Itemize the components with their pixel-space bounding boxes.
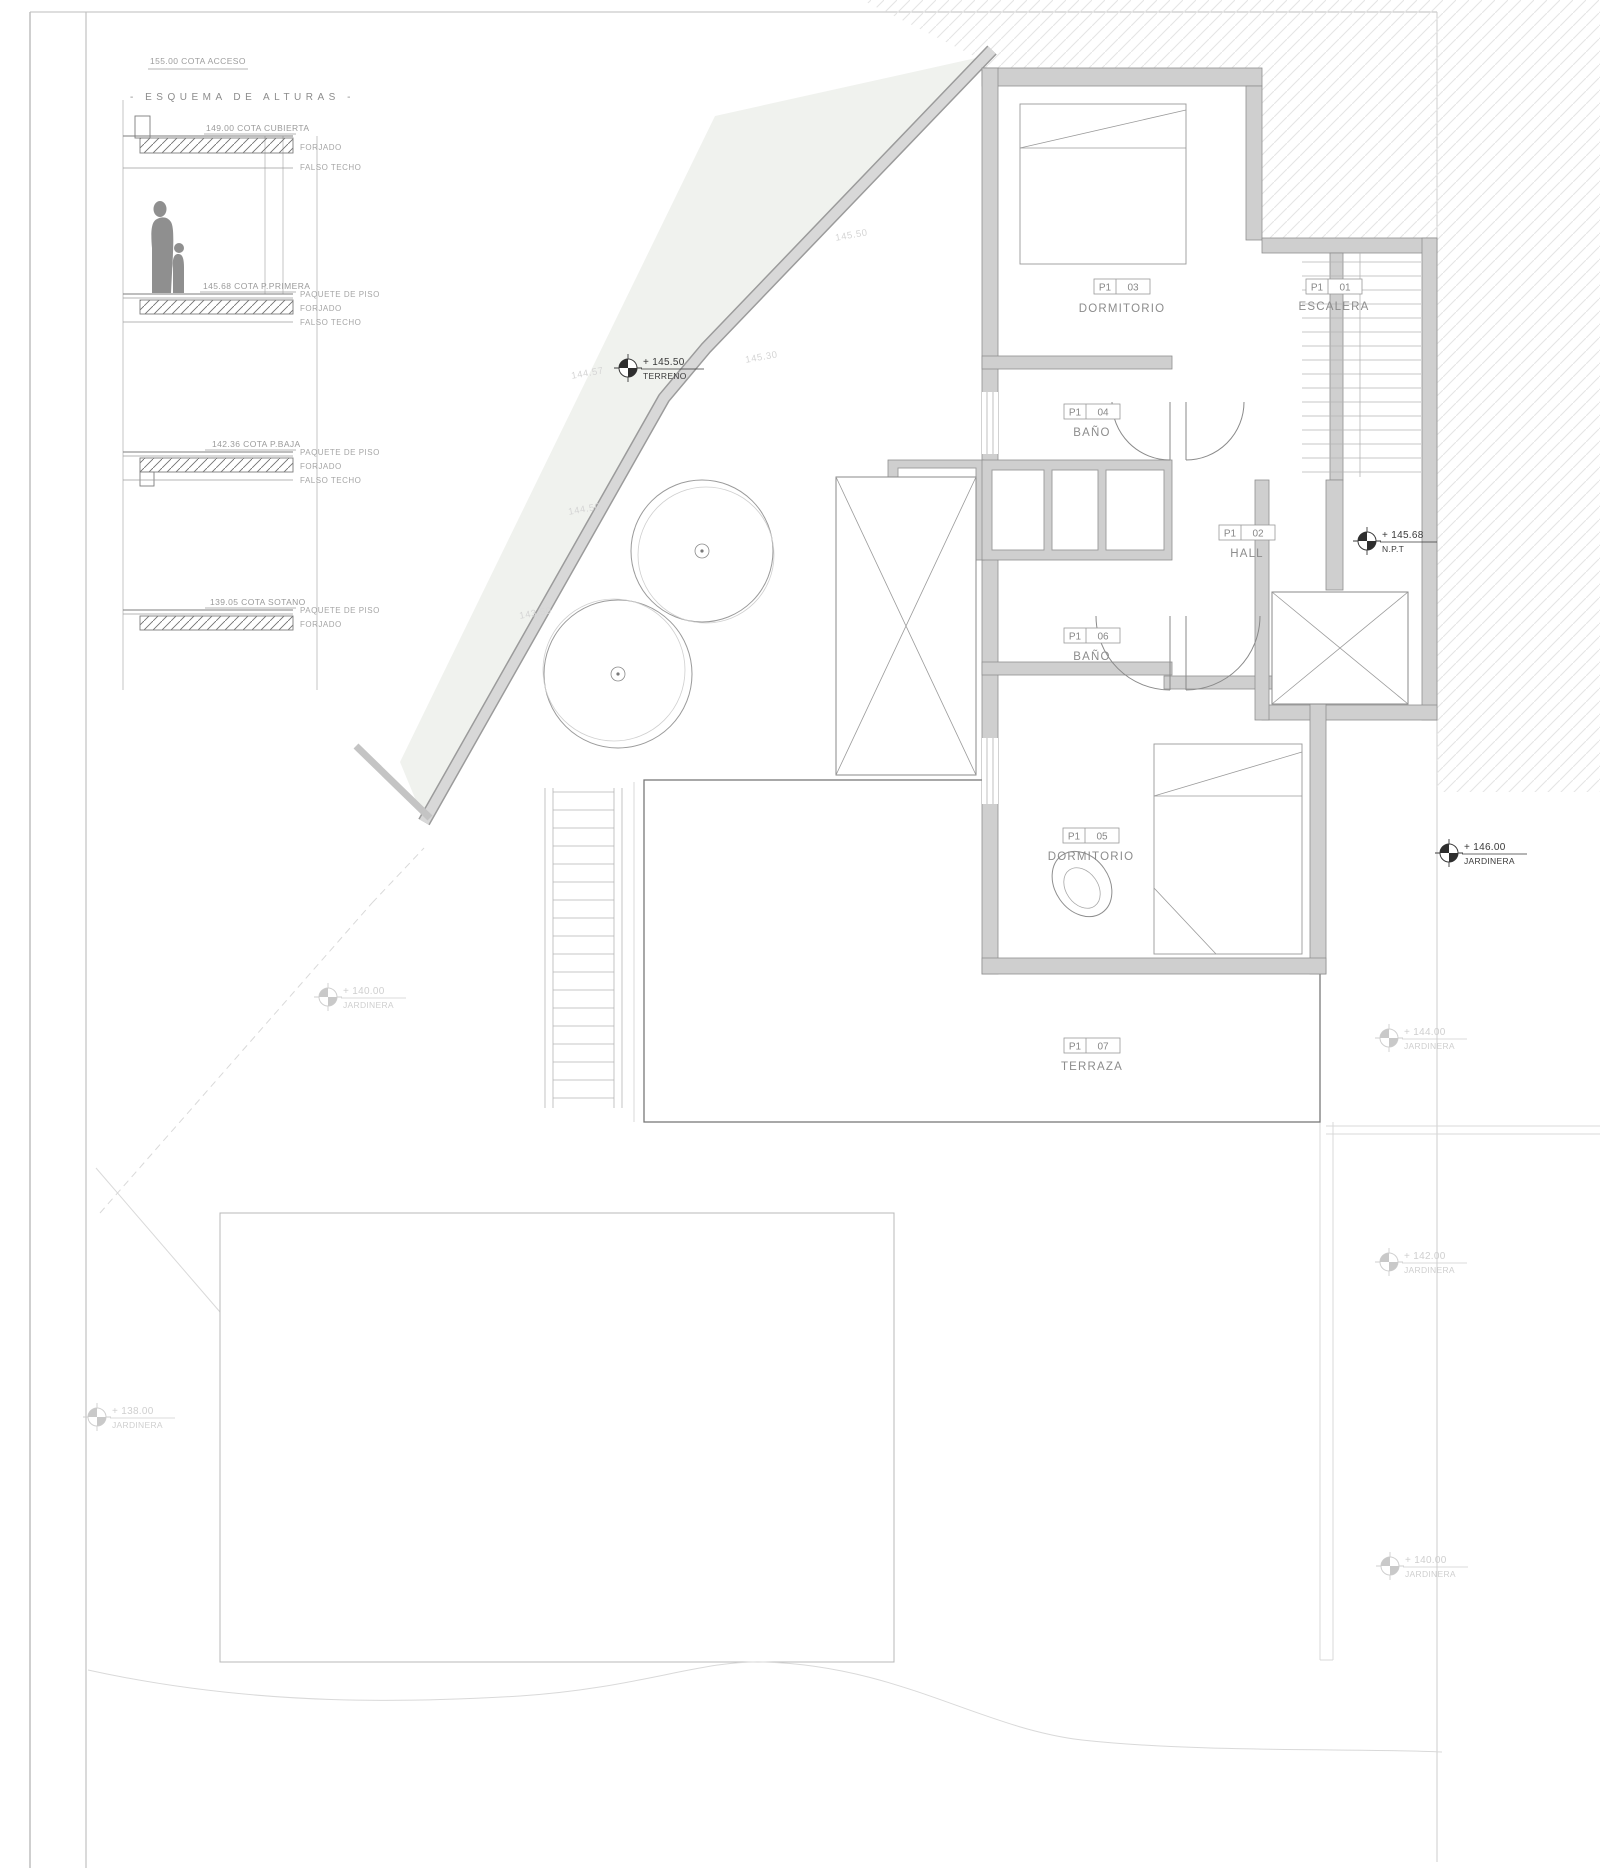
svg-text:+ 145.50: + 145.50 xyxy=(643,357,685,368)
svg-text:+ 142.00: + 142.00 xyxy=(1404,1251,1446,1262)
svg-text:JARDINERA: JARDINERA xyxy=(343,1000,394,1010)
svg-text:BAÑO: BAÑO xyxy=(1073,650,1110,663)
svg-text:07: 07 xyxy=(1097,1042,1109,1053)
level-marker-jardinera-140: + 140.00 JARDINERA xyxy=(1376,1552,1468,1580)
svg-text:06: 06 xyxy=(1097,632,1109,643)
svg-text:+ 145.68: + 145.68 xyxy=(1382,530,1424,541)
schema-level-basement: 139.05 COTA SOTANO PAQUETE DE PISO FORJA… xyxy=(123,597,380,630)
cota-primera: 145.68 COTA P.PRIMERA xyxy=(203,281,310,291)
svg-text:05: 05 xyxy=(1096,832,1108,843)
svg-text:+ 144.00: + 144.00 xyxy=(1404,1027,1446,1038)
layer-label: FORJADO xyxy=(300,304,342,313)
svg-text:TERRENO: TERRENO xyxy=(643,371,687,381)
contour-145-30: 145.30 xyxy=(745,349,779,366)
svg-text:+ 140.00: + 140.00 xyxy=(1405,1555,1447,1566)
schema-level-roof: 149.00 COTA CUBIERTA FORJADO FALSO TECHO xyxy=(123,116,361,172)
window-left-lower xyxy=(982,738,998,804)
svg-text:+ 138.00: + 138.00 xyxy=(112,1406,154,1417)
exterior-stairs xyxy=(545,788,622,1108)
svg-text:DORMITORIO: DORMITORIO xyxy=(1048,851,1135,863)
layer-label: FALSO TECHO xyxy=(300,163,361,172)
svg-text:P1: P1 xyxy=(1068,832,1081,843)
cota-cubierta: 149.00 COTA CUBIERTA xyxy=(206,123,309,133)
svg-text:P1: P1 xyxy=(1311,283,1324,294)
layer-label: PAQUETE DE PISO xyxy=(300,290,380,299)
svg-text:JARDINERA: JARDINERA xyxy=(1464,856,1515,866)
cota-sotano: 139.05 COTA SOTANO xyxy=(210,597,306,607)
layer-label: FORJADO xyxy=(300,620,342,629)
svg-text:N.P.T: N.P.T xyxy=(1382,544,1404,554)
svg-text:JARDINERA: JARDINERA xyxy=(112,1420,163,1430)
schema-title: - ESQUEMA DE ALTURAS - xyxy=(130,92,355,103)
layer-label: FALSO TECHO xyxy=(300,318,361,327)
svg-text:04: 04 xyxy=(1097,408,1109,419)
level-marker-jardinera-138: + 138.00 JARDINERA xyxy=(83,1403,175,1431)
svg-text:JARDINERA: JARDINERA xyxy=(1404,1041,1455,1051)
bed-dormitorio-bottom xyxy=(1154,744,1302,954)
svg-text:+ 146.00: + 146.00 xyxy=(1464,842,1506,853)
bed-dormitorio-top xyxy=(1020,104,1186,264)
window-left-upper xyxy=(982,392,998,454)
svg-text:JARDINERA: JARDINERA xyxy=(1405,1569,1456,1579)
people-silhouettes xyxy=(151,201,184,293)
layer-label: PAQUETE DE PISO xyxy=(300,606,380,615)
svg-text:ESCALERA: ESCALERA xyxy=(1299,301,1370,313)
layer-label: FALSO TECHO xyxy=(300,476,361,485)
layer-label: PAQUETE DE PISO xyxy=(300,448,380,457)
svg-text:P1: P1 xyxy=(1069,408,1082,419)
skylight-x-box-left xyxy=(836,477,976,775)
level-marker-jardinera-144: + 144.00 JARDINERA xyxy=(1375,1024,1467,1052)
skylight-x-box-right xyxy=(1272,592,1408,704)
access-note: 155.00 COTA ACCESO xyxy=(150,56,246,66)
cota-baja: 142.36 COTA P.BAJA xyxy=(212,439,301,449)
svg-text:DORMITORIO: DORMITORIO xyxy=(1079,303,1166,315)
drawing-sheet: 155.00 COTA ACCESO - ESQUEMA DE ALTURAS … xyxy=(0,0,1600,1873)
svg-text:P1: P1 xyxy=(1224,529,1237,540)
floor-plan-svg: 155.00 COTA ACCESO - ESQUEMA DE ALTURAS … xyxy=(0,0,1600,1873)
svg-text:JARDINERA: JARDINERA xyxy=(1404,1265,1455,1275)
schema-level-ground: 142.36 COTA P.BAJA PAQUETE DE PISO FORJA… xyxy=(123,439,380,486)
level-marker-jardinera-left: + 140.00 JARDINERA xyxy=(314,983,406,1011)
height-schema: 155.00 COTA ACCESO - ESQUEMA DE ALTURAS … xyxy=(123,56,380,690)
level-marker-jardinera-142: + 142.00 JARDINERA xyxy=(1375,1248,1467,1276)
layer-label: FORJADO xyxy=(300,143,342,152)
svg-text:+ 140.00: + 140.00 xyxy=(343,986,385,997)
level-marker-jardinera-146: + 146.00 JARDINERA xyxy=(1435,839,1527,867)
svg-text:TERRAZA: TERRAZA xyxy=(1061,1061,1123,1073)
svg-text:P1: P1 xyxy=(1099,283,1112,294)
layer-label: FORJADO xyxy=(300,462,342,471)
svg-text:P1: P1 xyxy=(1069,632,1082,643)
svg-text:02: 02 xyxy=(1252,529,1264,540)
contour-145-50: 145.50 xyxy=(835,227,869,244)
svg-text:03: 03 xyxy=(1127,283,1139,294)
svg-text:HALL: HALL xyxy=(1230,548,1264,560)
svg-text:01: 01 xyxy=(1339,283,1351,294)
svg-text:P1: P1 xyxy=(1069,1042,1082,1053)
svg-text:BAÑO: BAÑO xyxy=(1073,426,1110,439)
